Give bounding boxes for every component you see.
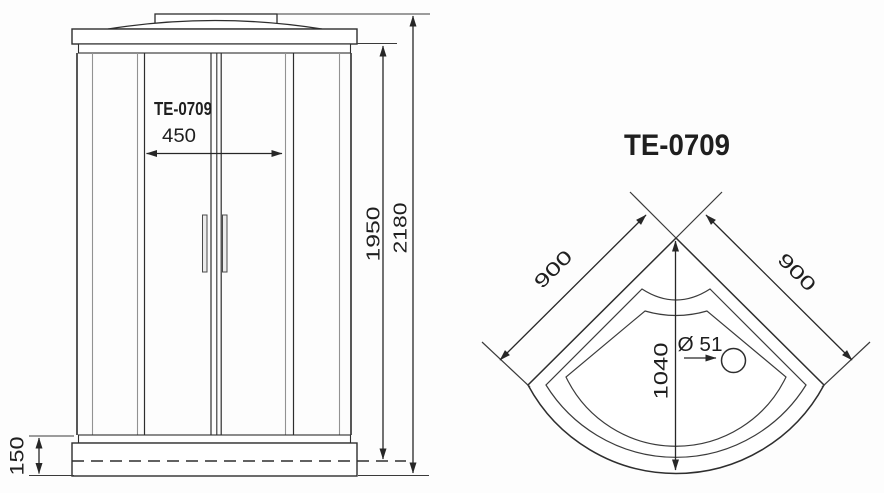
plan-view: TE-0709 900 900 1040 Ø 51 — [482, 129, 870, 474]
ext-apex-right — [676, 192, 722, 238]
front-elevation-view: TE-0709 450 1950 2180 150 — [8, 14, 430, 476]
plan-model-label: TE-0709 — [624, 129, 730, 162]
dim-glass-height-label: 1950 — [363, 207, 383, 262]
dim-drain-label: Ø 51 — [678, 334, 723, 356]
dim-total-height-label: 2180 — [390, 203, 410, 254]
dim-tray-height: 150 — [8, 436, 74, 476]
dim-heights: 1950 2180 — [277, 14, 430, 476]
ext-corner-right — [822, 342, 870, 387]
tray-base — [72, 443, 357, 476]
dim-tray-height-label: 150 — [8, 437, 29, 476]
drain-hole — [722, 349, 746, 373]
door-handle-left — [203, 215, 208, 272]
front-model-label: TE-0709 — [154, 99, 212, 119]
drawing-canvas: TE-0709 450 1950 2180 150 TE-0709 — [0, 0, 884, 493]
door-handle-right — [223, 215, 228, 272]
glass-panels — [77, 53, 351, 435]
technical-drawing: TE-0709 450 1950 2180 150 TE-0709 — [0, 0, 884, 493]
dim-side-left-label: 900 — [530, 246, 577, 293]
dim-door-width: 450 — [147, 126, 283, 154]
tray-lip — [79, 435, 351, 443]
dome-roof — [108, 21, 322, 30]
top-frame-lip — [79, 44, 351, 53]
ext-corner-left — [482, 342, 530, 387]
top-frame — [72, 29, 357, 44]
dim-door-width-label: 450 — [162, 126, 196, 147]
ext-apex-left — [630, 192, 676, 238]
dim-diagonal-label: 1040 — [652, 343, 673, 400]
